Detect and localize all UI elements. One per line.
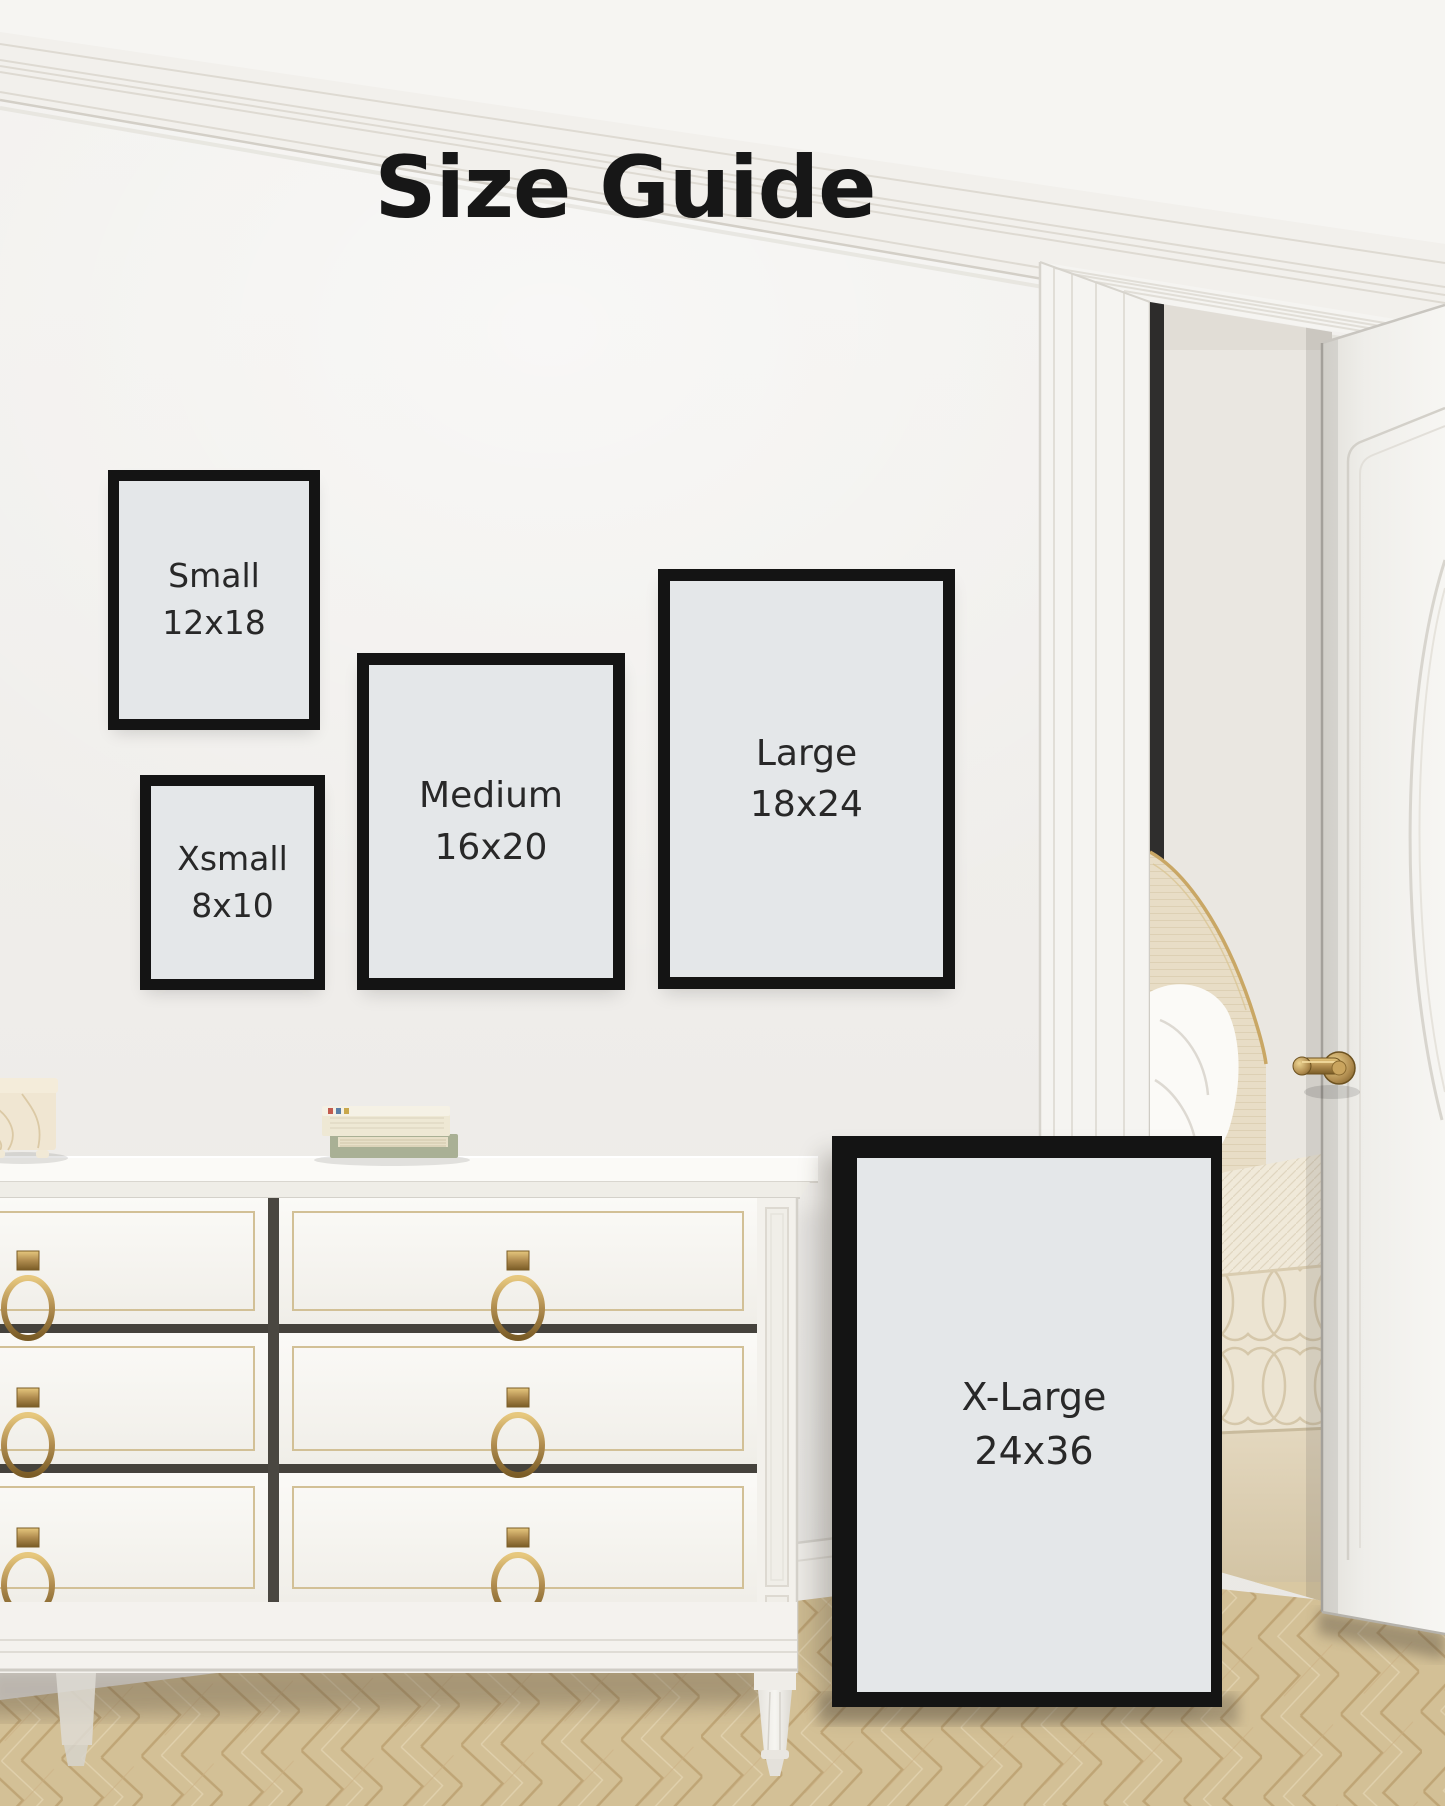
size-frame-xlarge: X-Large 24x36	[832, 1136, 1222, 1707]
frame-size-label: Xsmall	[177, 836, 288, 883]
size-frame-xsmall: Xsmall 8x10	[140, 775, 325, 990]
size-frame-medium: Medium 16x20	[357, 653, 625, 990]
drawer-gap	[268, 1198, 279, 1673]
dresser-base	[0, 1602, 797, 1673]
frame-size-dimensions: 12x18	[162, 600, 266, 647]
frame-size-dimensions: 18x24	[750, 779, 863, 830]
frame-size-dimensions: 16x20	[419, 822, 563, 873]
drawer-fronts	[0, 1198, 757, 1602]
frame-size-label: Medium	[419, 770, 563, 821]
stacked-books	[314, 1106, 470, 1166]
frame-size-dimensions: 8x10	[177, 883, 288, 930]
size-frame-large: Large 18x24	[658, 569, 955, 989]
drawer-gap	[0, 1324, 757, 1333]
drawer-gap	[0, 1464, 757, 1473]
size-guide-mockup: Size Guide Small 12x18 Xsmall 8x10 Mediu…	[0, 0, 1445, 1806]
frame-size-label: Small	[162, 553, 266, 600]
page-title: Size Guide	[300, 128, 950, 248]
dresser-stile	[757, 1198, 797, 1673]
frame-size-dimensions: 24x36	[962, 1425, 1107, 1479]
size-frame-small: Small 12x18	[108, 470, 320, 730]
frame-size-label: Large	[750, 728, 863, 779]
book	[330, 1134, 458, 1158]
book	[322, 1106, 450, 1136]
frame-size-label: X-Large	[962, 1371, 1107, 1425]
